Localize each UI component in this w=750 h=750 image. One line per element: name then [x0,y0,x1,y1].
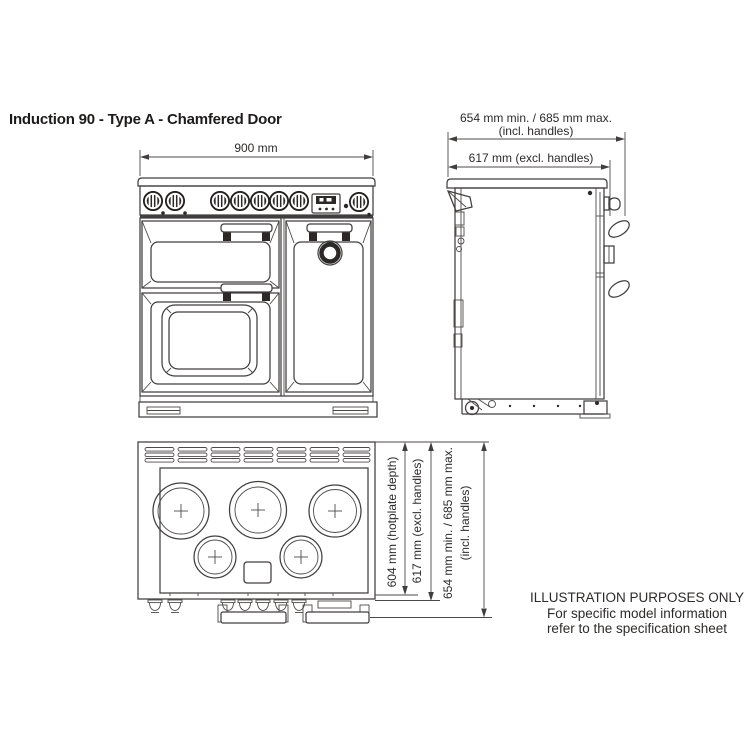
side-knob [604,197,609,210]
zone-front-left [194,536,236,578]
grill-door-handle [221,224,272,241]
grill-door [142,221,279,288]
top-depth-excl-label: 617 mm (excl. handles) [410,459,424,584]
hob-control-zone [244,562,271,583]
side-worktop [447,179,607,188]
technical-drawing: 900 mm [0,0,750,750]
hotplate-depth-label: 604 mm (hotplate depth) [385,457,399,588]
fixing-screw [588,191,592,195]
side-depth-incl-label: 654 mm min. / 685 mm max. [460,111,612,125]
rear-vents [145,448,370,463]
front-width-label: 900 mm [234,141,277,155]
top-handle-left [218,605,288,623]
knob-top [238,600,252,613]
top-depth-incl-suffix: (incl. handles) [458,486,472,561]
knob-top [256,600,270,613]
worktop-edge [138,178,375,186]
hob-outline [138,442,375,599]
side-depth-incl-suffix: (incl. handles) [499,124,574,138]
front-plinth [139,396,377,417]
burner-knob [144,192,163,211]
burner-knob [251,192,270,211]
tall-door-handle [307,224,352,241]
front-doors [140,218,373,396]
side-handle-upper [606,217,632,240]
main-oven-door [142,284,279,392]
knob-top [292,600,306,613]
spec-sheet-page: Induction 90 - Type A - Chamfered Door I… [0,0,750,750]
top-dimensions: 604 mm (hotplate depth) 617 mm (excl. ha… [370,442,492,618]
knob-top [168,600,182,613]
control-panel [140,186,373,217]
knob-top [221,600,235,613]
main-oven-handle [221,284,272,301]
side-depth-excl-label: 617 mm (excl. handles) [469,151,594,165]
front-view: 900 mm [138,141,377,417]
burner-knob [166,192,185,211]
burner-knob [211,192,230,211]
side-front-details [604,197,632,301]
side-base [462,399,610,418]
top-depth-incl-label: 654 mm min. / 685 mm max. [441,447,455,599]
burner-knob [290,192,309,211]
induction-zones [153,482,361,584]
rear-bracket-and-hinges [448,191,472,347]
zone-right [309,485,361,537]
top-view: 604 mm (hotplate depth) 617 mm (excl. ha… [138,442,492,623]
top-front-edge [148,593,369,623]
burner-knob [270,192,289,211]
zone-front-right [280,536,322,578]
front-width-dimension: 900 mm [140,141,373,176]
tall-oven-door [286,221,371,392]
hob-glass [160,468,368,593]
temperature-gauge [318,241,342,265]
knob-top [148,600,162,613]
zone-middle [230,482,287,539]
display-top [318,601,351,608]
burner-knob [231,192,250,211]
side-view: 654 mm min. / 685 mm max. (incl. handles… [447,111,632,418]
side-handle-lower [606,277,632,300]
side-body [455,188,604,399]
oven-knob [350,193,369,212]
knob-top [274,600,288,613]
zone-left [153,483,209,539]
clock-display [312,194,340,213]
oven-window [162,305,257,376]
